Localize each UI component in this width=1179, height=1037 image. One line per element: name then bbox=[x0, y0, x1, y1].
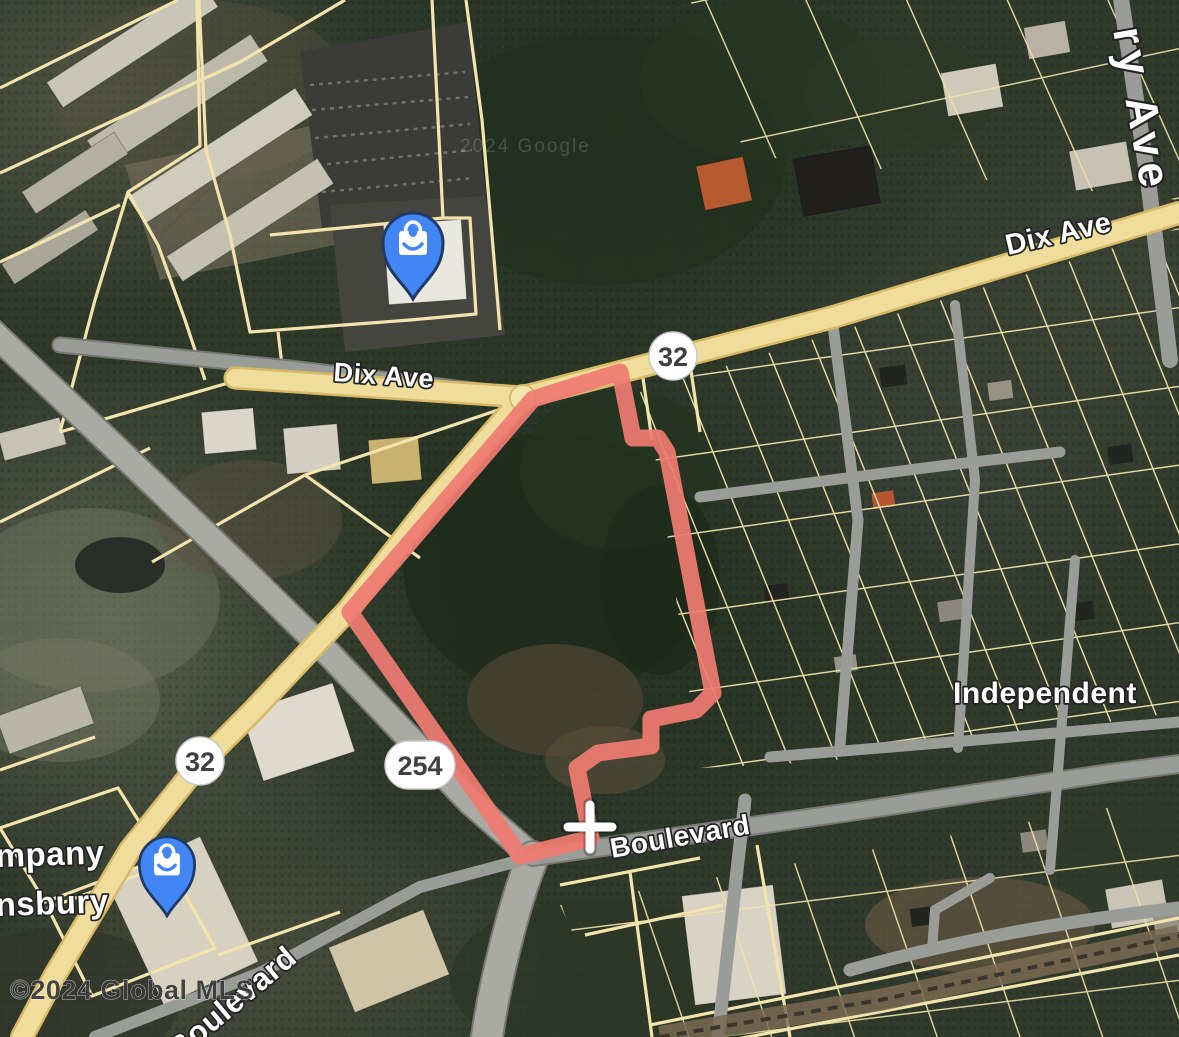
map-svg[interactable]: Dix Ave Dix Ave Boulevard Boulevard ry A… bbox=[0, 0, 1179, 1037]
street-label-boulevard-east: Boulevard bbox=[608, 809, 753, 864]
imagery-watermark: 2024 Google bbox=[460, 136, 591, 157]
attribution-text: ©2024 Global MLS bbox=[10, 975, 254, 1005]
poi-label-company-line1: mpany bbox=[0, 833, 105, 874]
route-shield-254: 254 bbox=[385, 741, 455, 789]
route-shield-32-west-label: 32 bbox=[185, 747, 215, 777]
route-shield-32-west: 32 bbox=[176, 737, 224, 785]
route-shield-32-north: 32 bbox=[649, 332, 697, 380]
route-shield-32-north-label: 32 bbox=[658, 342, 688, 372]
poi-label-company-line2: nsbury bbox=[0, 882, 109, 923]
map-viewport[interactable]: Dix Ave Dix Ave Boulevard Boulevard ry A… bbox=[0, 0, 1179, 1037]
route-shield-254-label: 254 bbox=[397, 751, 442, 781]
street-label-independent: Independent bbox=[953, 677, 1137, 710]
